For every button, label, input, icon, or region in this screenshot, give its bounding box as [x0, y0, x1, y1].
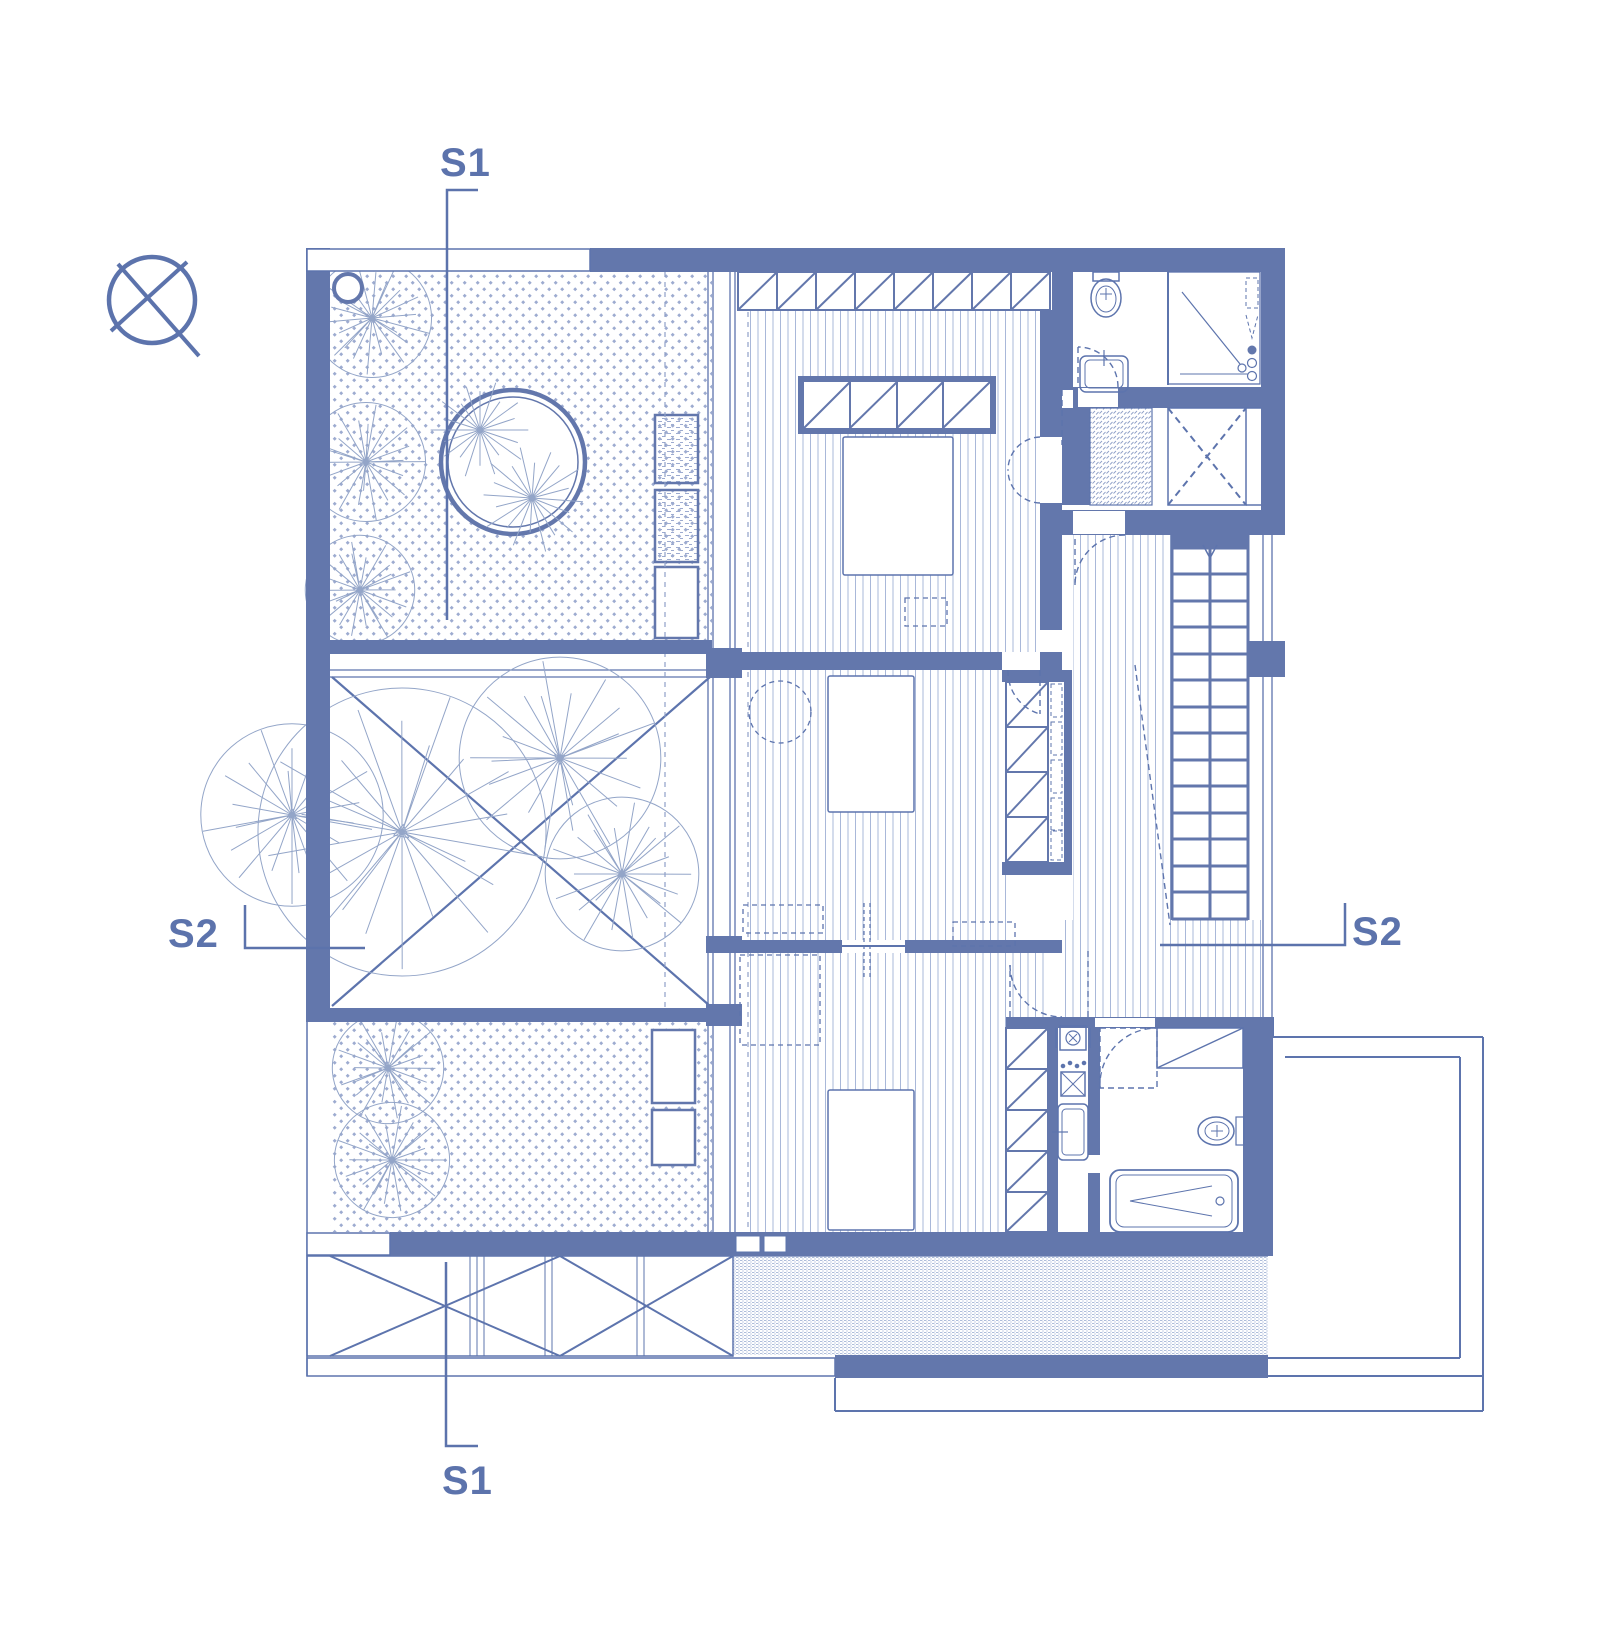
bathroom-bottom [1110, 1028, 1244, 1232]
bathroom-top [1080, 272, 1260, 392]
toilet-icon [1091, 272, 1121, 317]
section-label-s2-left: S2 [168, 912, 219, 956]
bedroom3-closet [1006, 1028, 1048, 1232]
section-label-s2-right: S2 [1352, 910, 1403, 954]
toilet-bottom-icon [1198, 1117, 1244, 1145]
west-glazing [708, 272, 735, 1232]
elevator-void [1168, 408, 1261, 505]
section-line-s1-bottom [446, 1262, 478, 1446]
garden-drain [334, 274, 362, 302]
sink-icon [1080, 350, 1128, 392]
courtyard-void [330, 670, 712, 1006]
service-shaft [1090, 408, 1152, 505]
north-indicator-icon [109, 257, 199, 356]
section-label-s1-bottom: S1 [442, 1459, 493, 1503]
floor-plan-page: S1 S1 S2 S2 [0, 0, 1600, 1645]
south-terrace [733, 1256, 1268, 1355]
bedroom1-closet-row [738, 272, 1050, 310]
washer-icon [1056, 1026, 1090, 1050]
bathtub-icon [1110, 1170, 1238, 1232]
staircase [1172, 535, 1248, 920]
bedroom2-closet [1002, 670, 1072, 875]
garden-planter-boxes [652, 415, 698, 1165]
floor-plan-canvas: S1 S1 S2 S2 [0, 0, 1600, 1645]
section-line-s2-left [245, 905, 365, 948]
shower-icon [1168, 272, 1260, 384]
bedroom1-wardrobe [798, 376, 996, 434]
utility-sink-icon [1052, 1104, 1088, 1160]
section-label-s1-top: S1 [440, 141, 491, 185]
stove-icon [1061, 1061, 1086, 1096]
shower-tray-icon [1157, 1028, 1243, 1068]
